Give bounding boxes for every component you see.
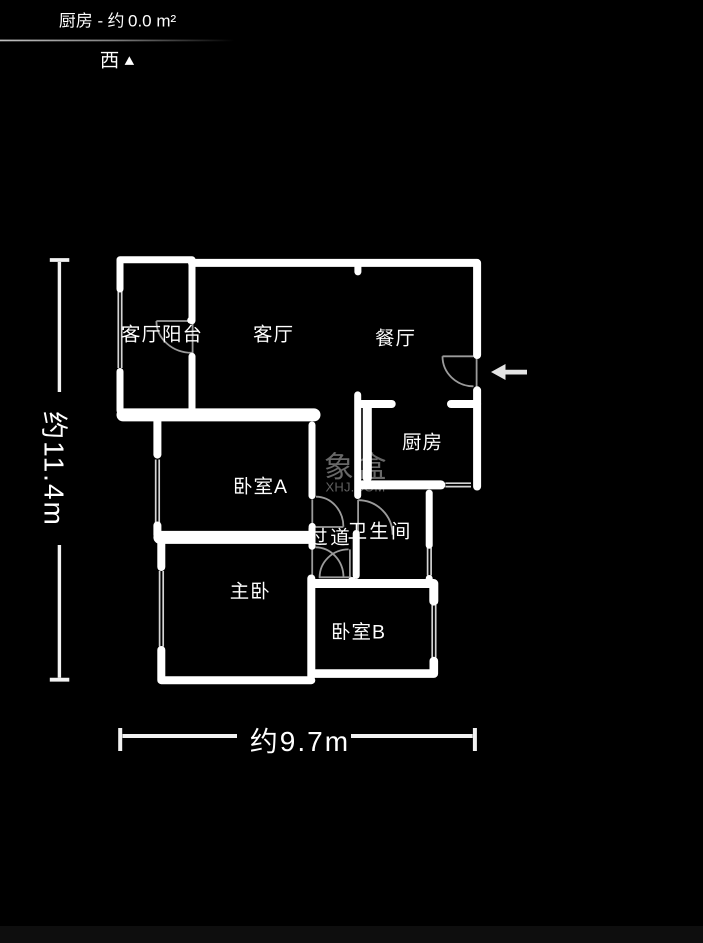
svg-text:B: B (372, 622, 386, 644)
svg-text:A: A (274, 476, 288, 498)
svg-text:9.7m: 9.7m (280, 726, 350, 757)
svg-text:0.0 m²: 0.0 m² (128, 12, 177, 31)
svg-text:-: - (98, 12, 104, 31)
svg-text:11.4m: 11.4m (38, 441, 69, 527)
